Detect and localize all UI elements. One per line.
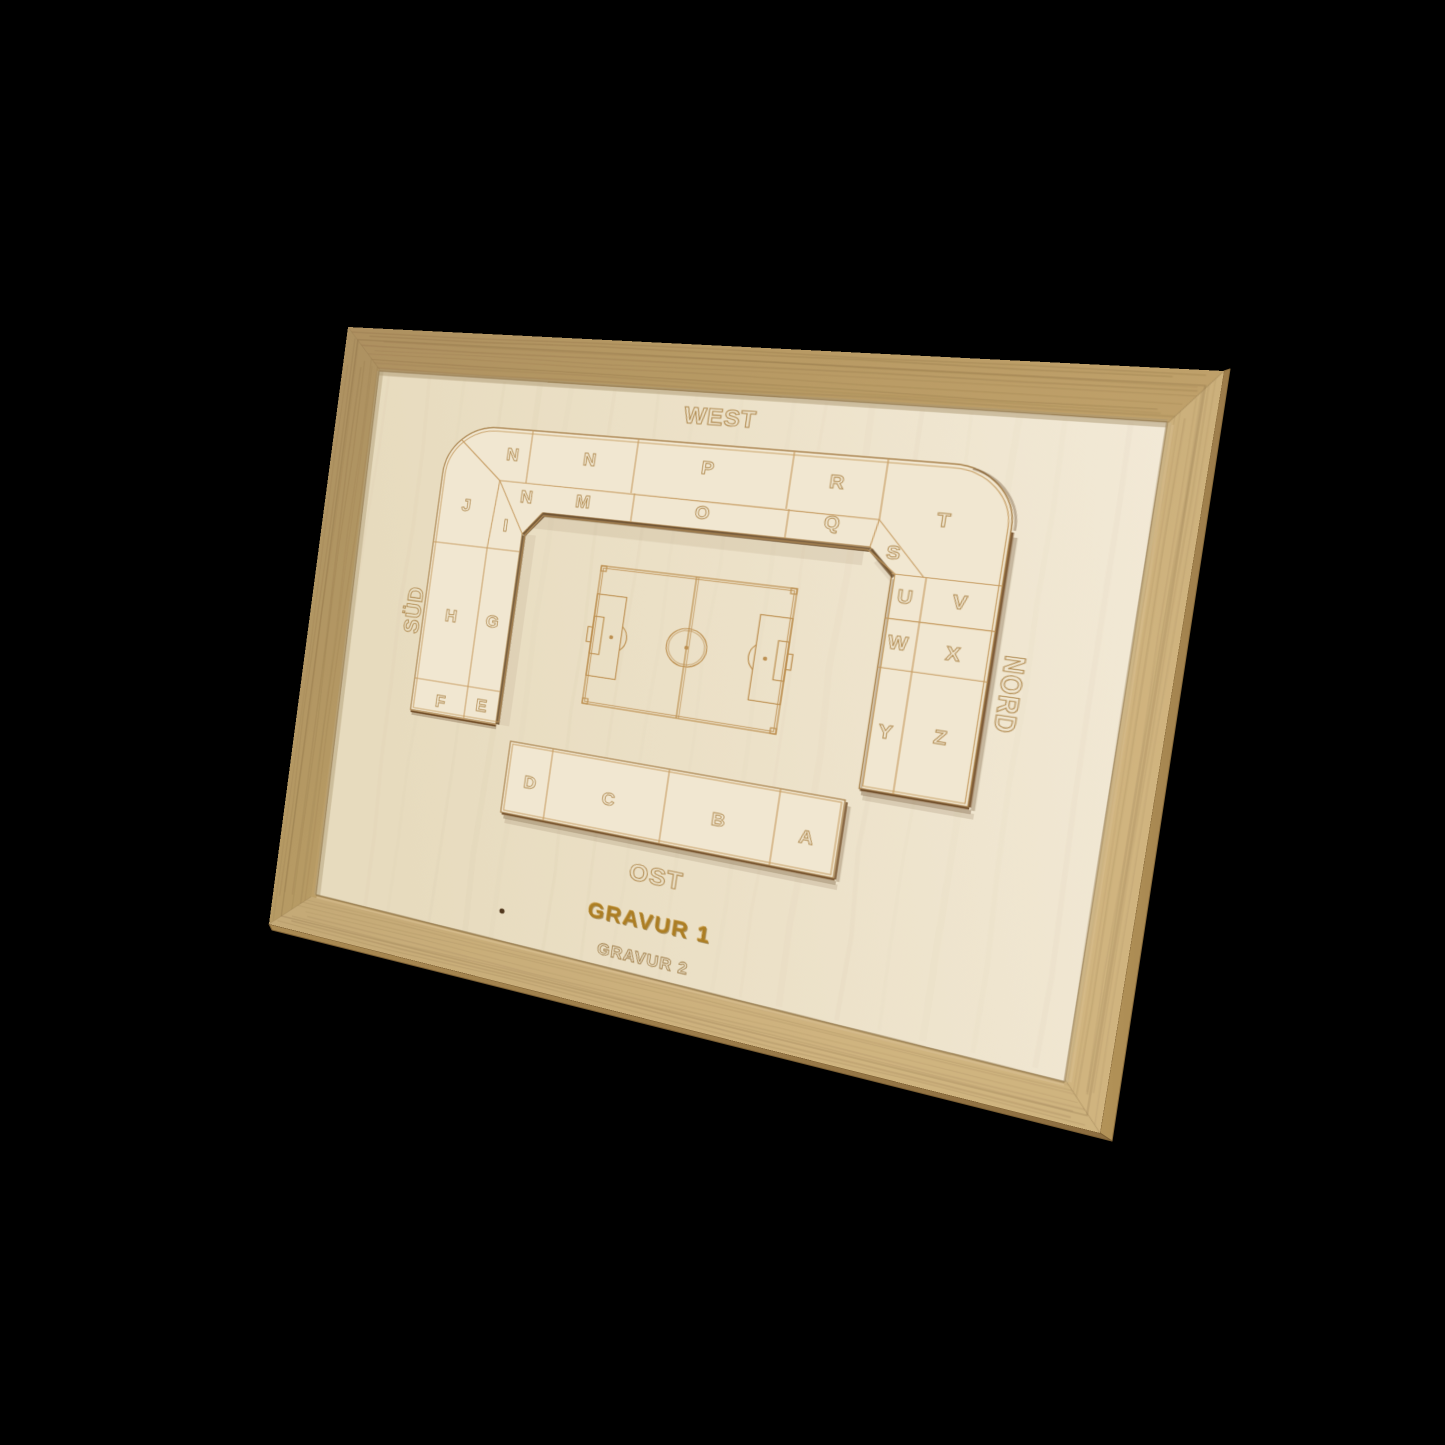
svg-text:M: M — [574, 492, 591, 513]
svg-text:U: U — [896, 586, 915, 609]
svg-text:O: O — [693, 503, 711, 525]
svg-text:Q: Q — [822, 512, 841, 535]
svg-text:N: N — [582, 450, 598, 471]
svg-text:G: G — [484, 612, 500, 633]
svg-text:WEST: WEST — [682, 403, 758, 433]
